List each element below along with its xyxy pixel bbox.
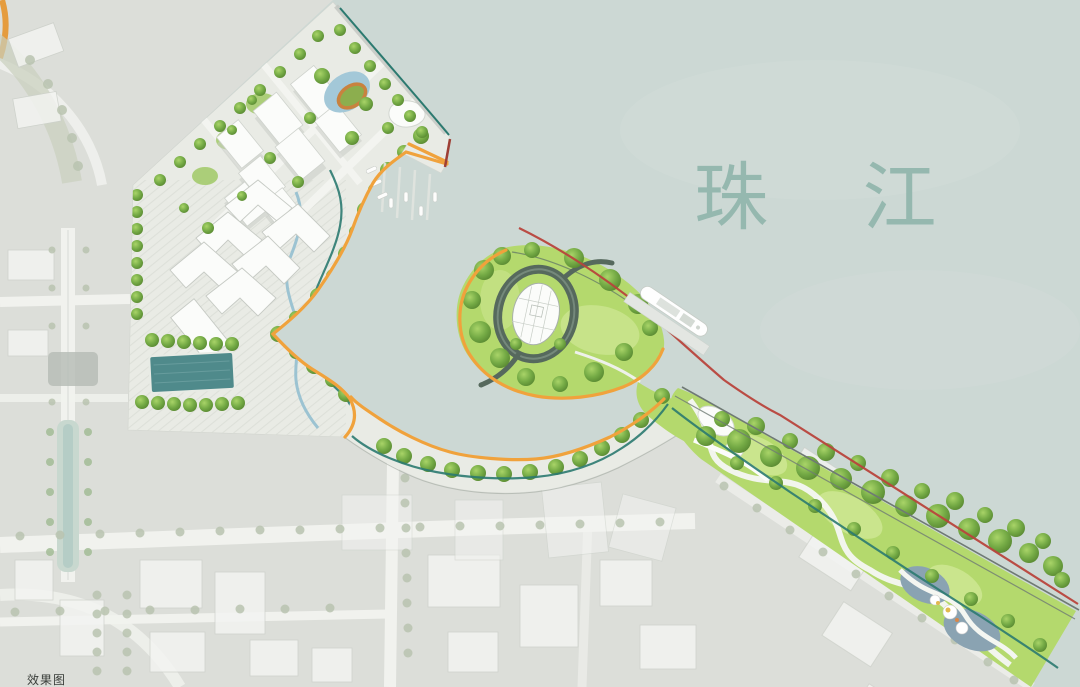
river-name-label: 珠 江: [694, 138, 975, 245]
reflecting-pool: [149, 352, 235, 393]
corner-caption: 效果图: [27, 671, 66, 687]
masterplan-rendering: 珠 江 效果图: [0, 0, 1080, 687]
context-canal: [57, 420, 79, 572]
site-plan-canvas: [0, 0, 1080, 687]
highway-interchange: [48, 352, 98, 386]
